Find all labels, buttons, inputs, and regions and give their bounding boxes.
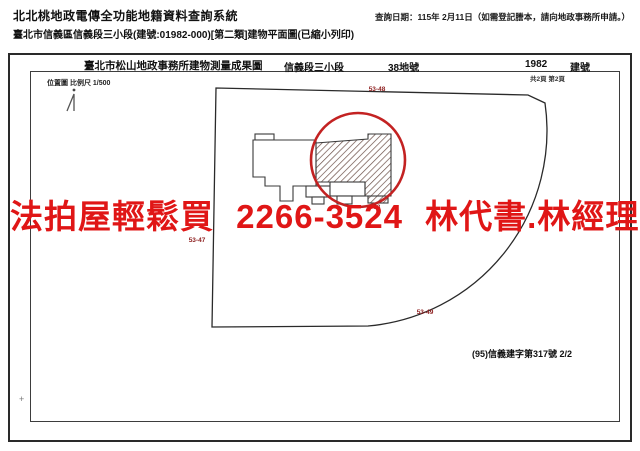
certificate-number: (95)信義建字第317號 2/2: [472, 348, 572, 359]
parcel-label-left: 53-47: [189, 237, 206, 244]
parcel-label-bottom: 53-49: [417, 309, 434, 316]
north-arrow-icon: [67, 89, 75, 111]
watermark-text: 法拍屋輕鬆買 2266-3524 林代書.林經理: [10, 198, 639, 235]
cadastral-document-page: 北北桃地政電傳全功能地籍資料查詢系統 查詢日期：115年 2月11日（如需登記謄…: [0, 0, 640, 451]
parcel-label-top: 53-48: [369, 86, 386, 93]
